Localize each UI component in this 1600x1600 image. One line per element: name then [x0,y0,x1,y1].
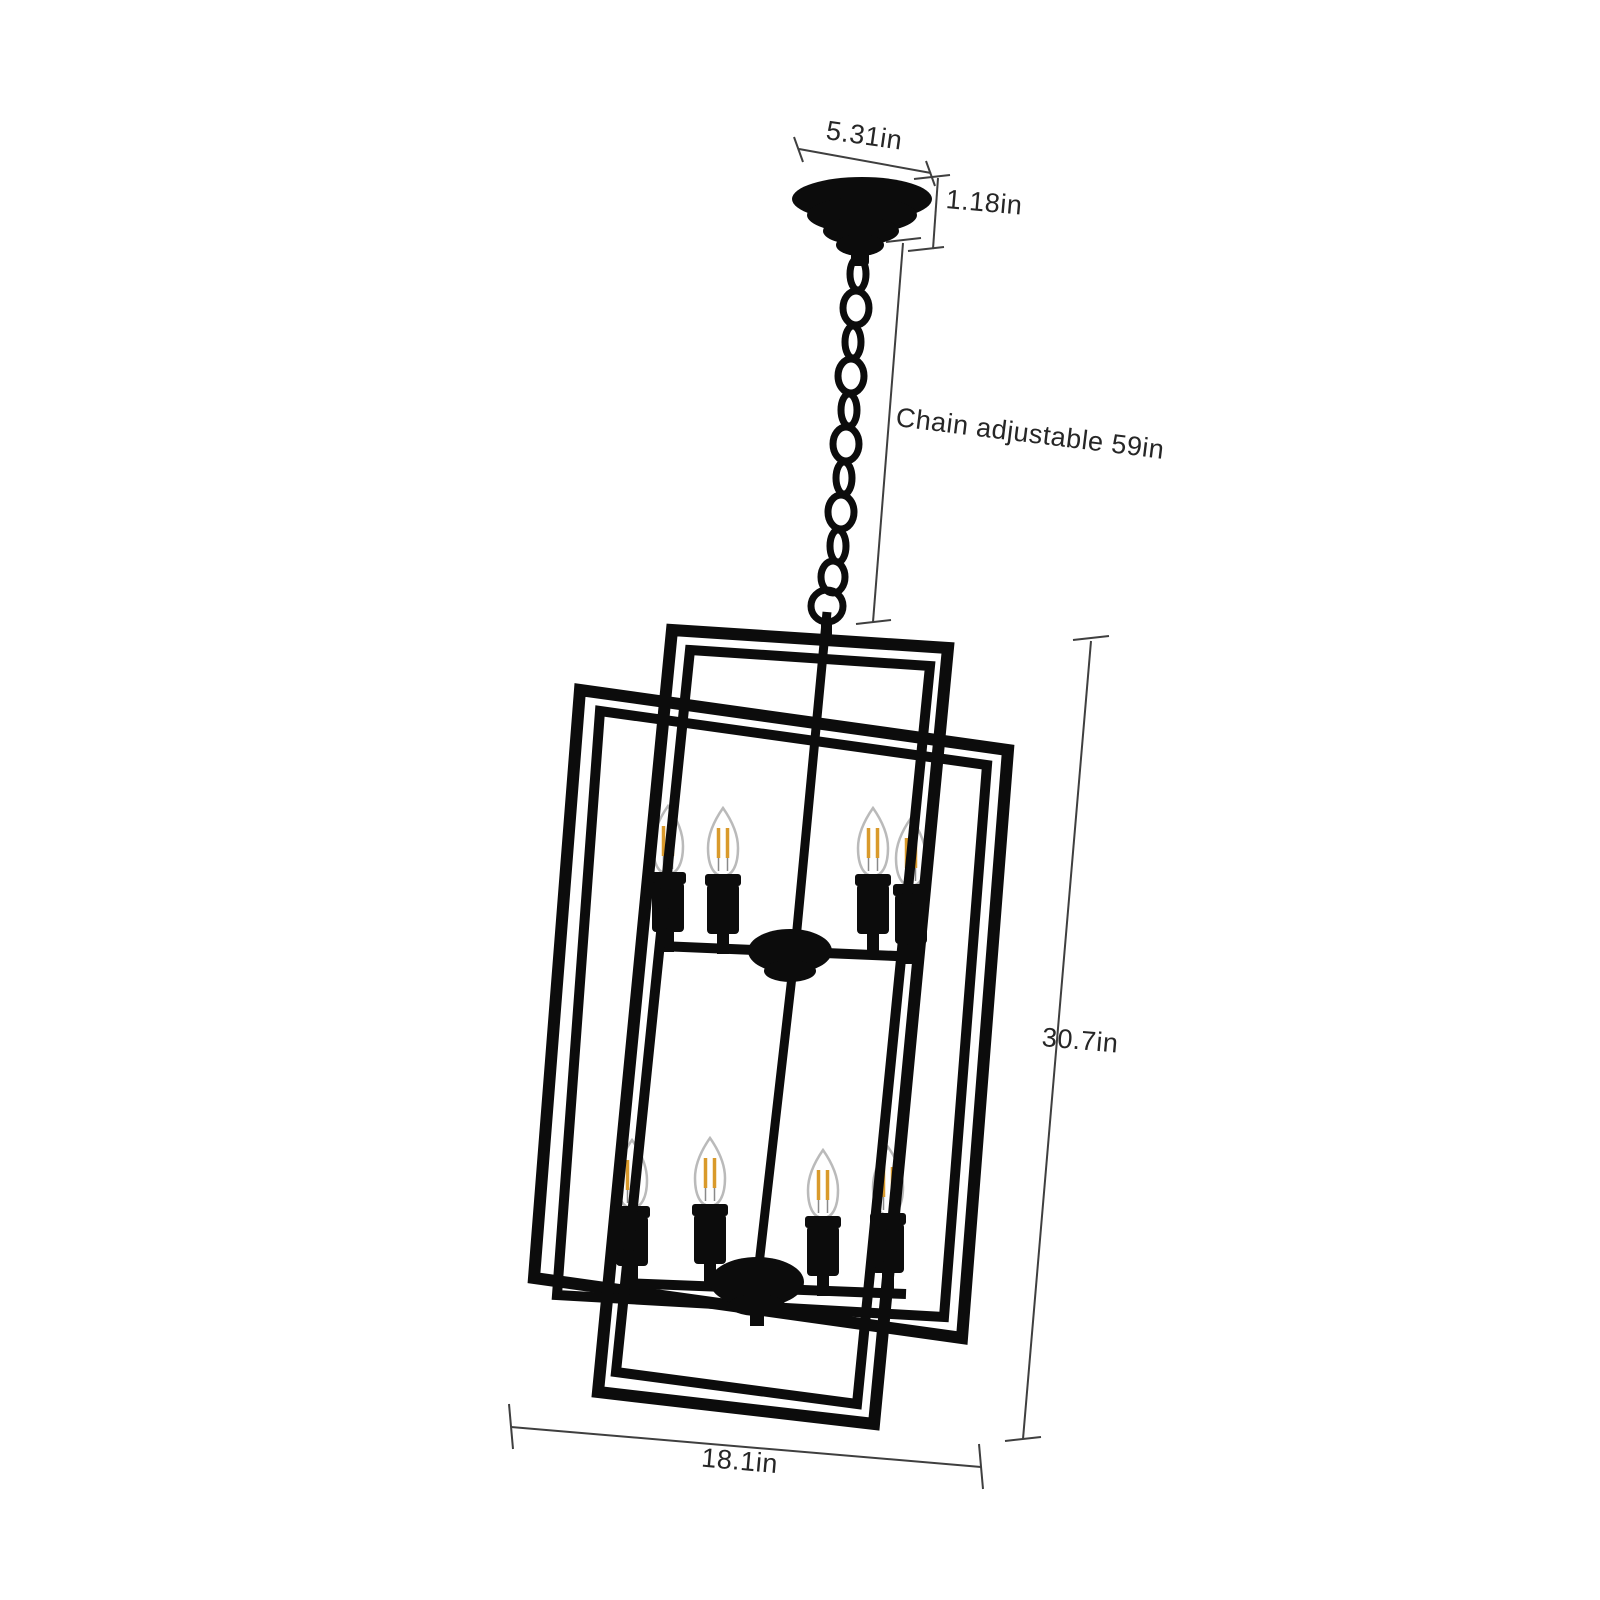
ceiling-canopy [792,177,932,266]
hanging-chain [821,258,869,593]
chandelier-illustration [0,0,1600,1600]
fixture-height-label: 30.7in [1041,1022,1120,1060]
product-dimension-diagram: 5.31in 1.18in Chain adjustable 59in 30.7… [0,0,1600,1600]
upper-light-arm [660,929,920,982]
canopy-height-label: 1.18in [945,184,1024,222]
